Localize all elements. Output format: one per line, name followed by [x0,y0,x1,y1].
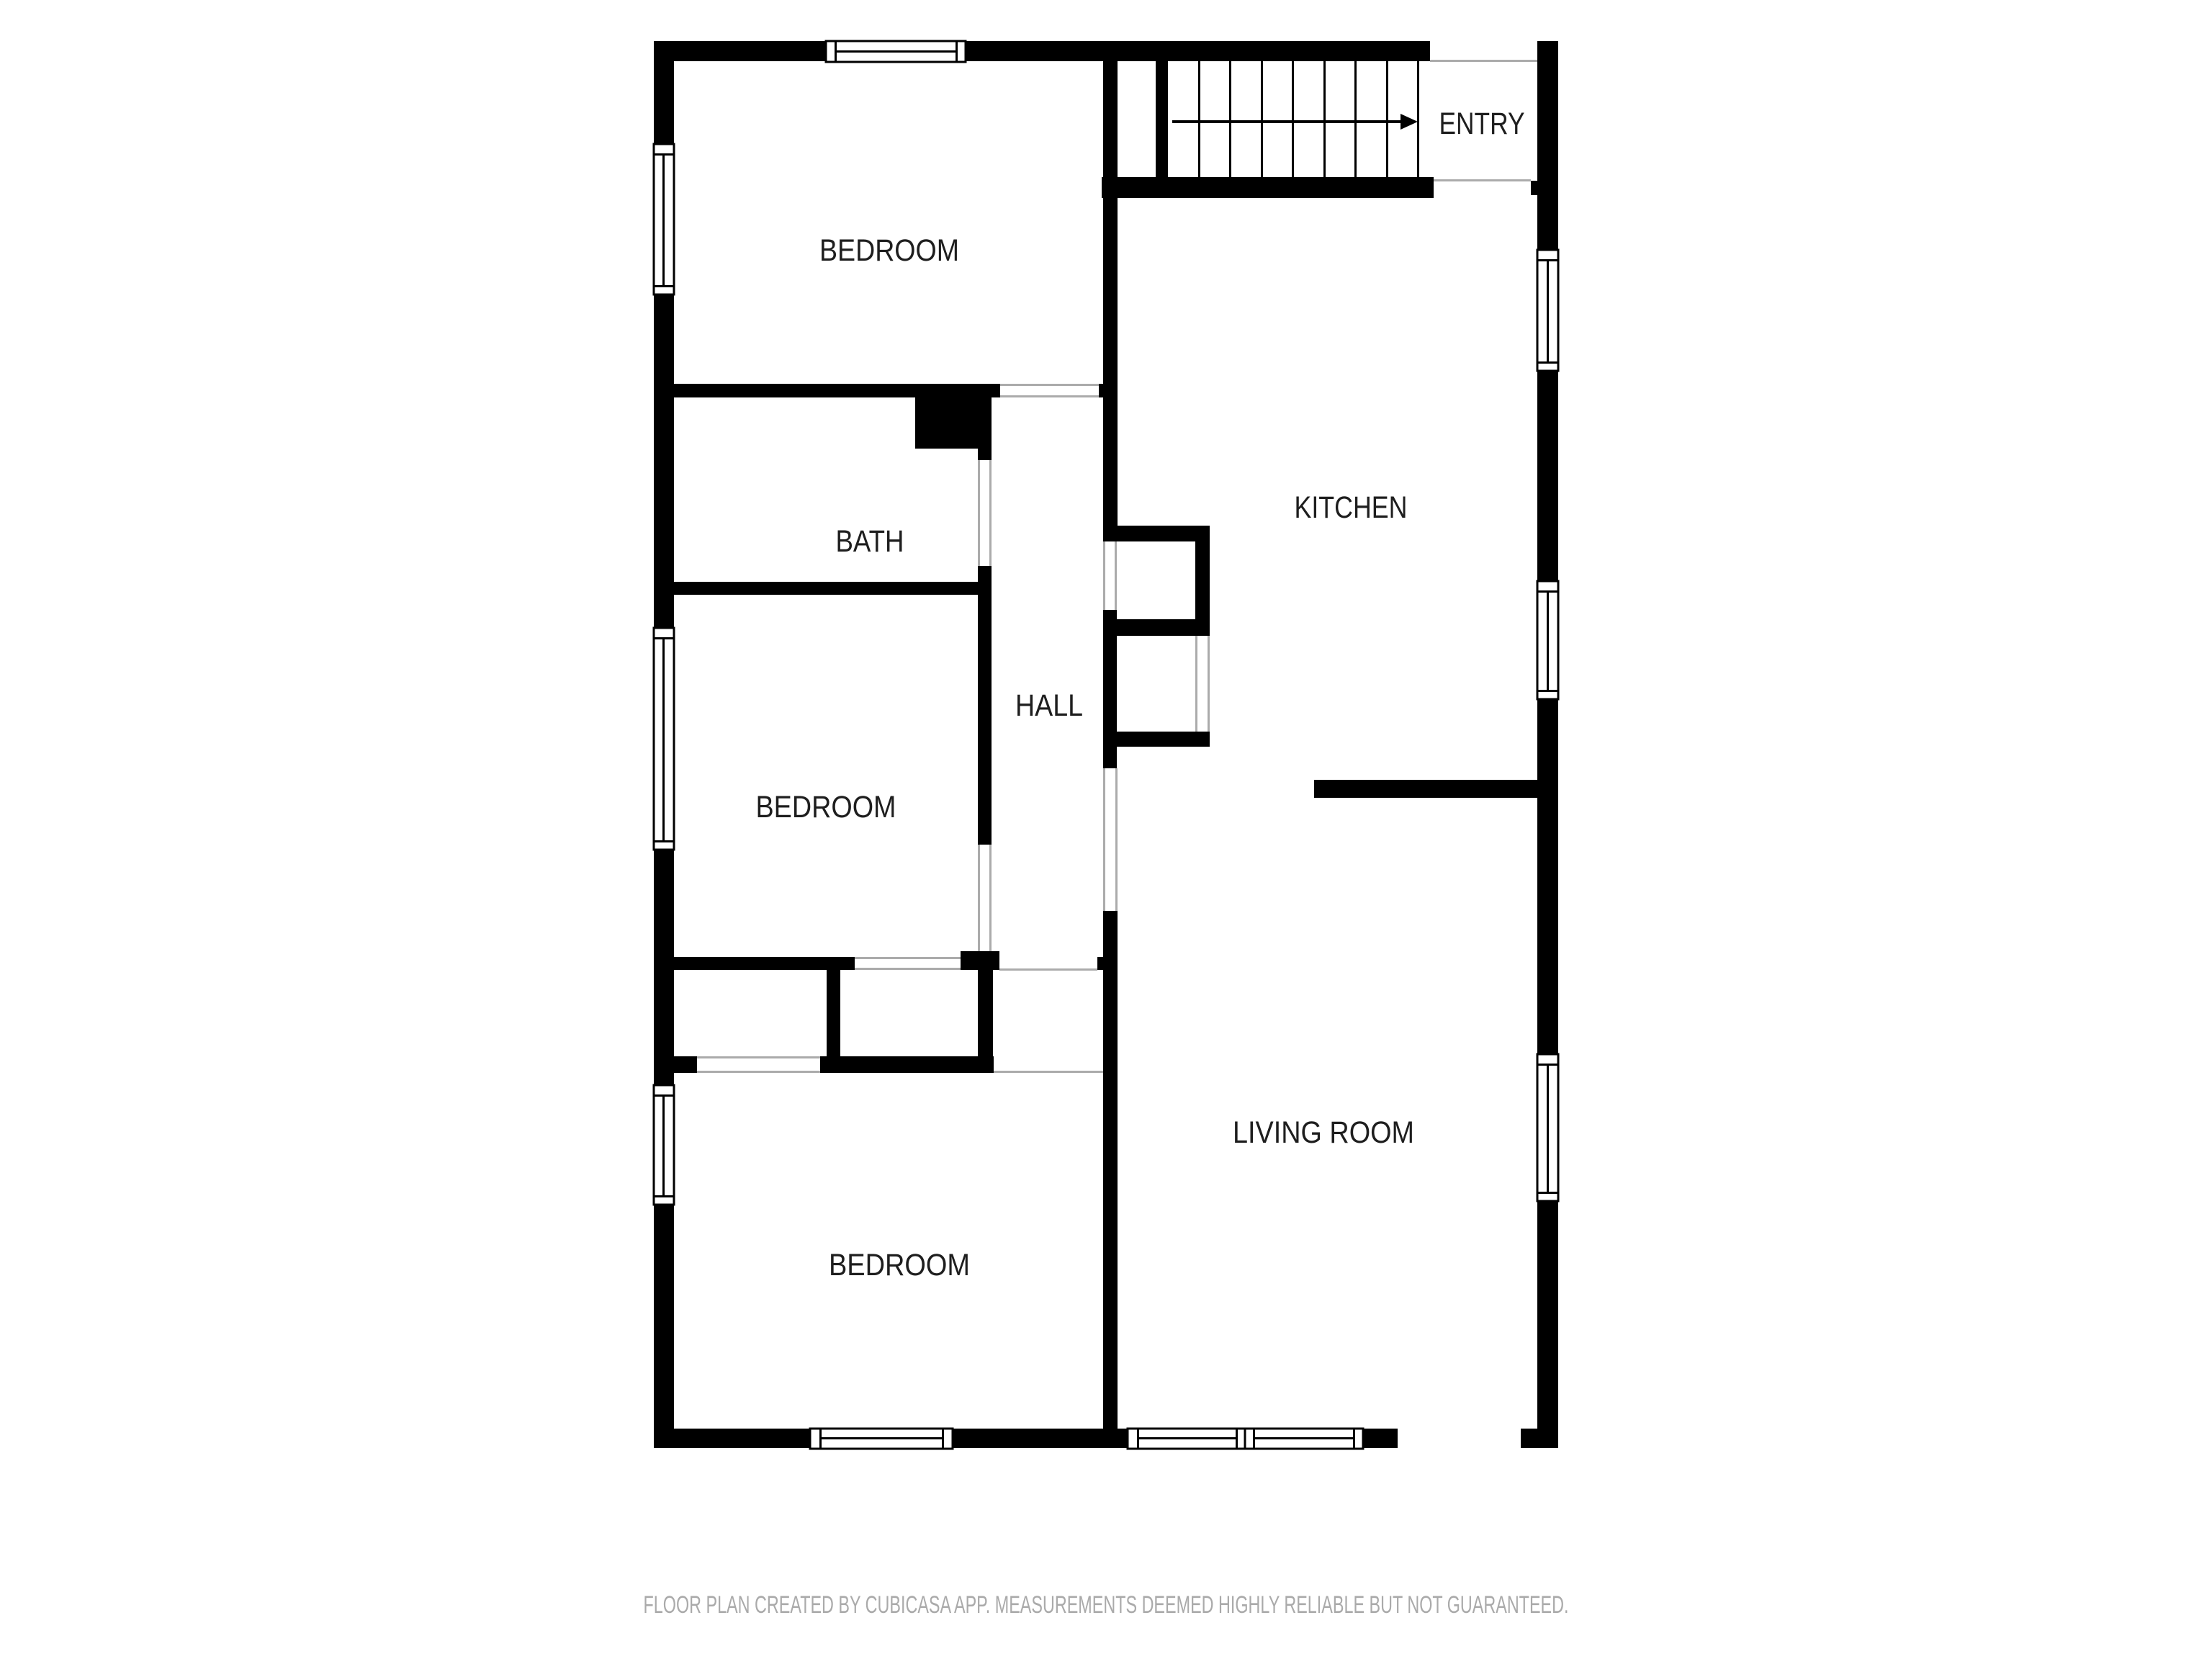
svg-text:ENTRY: ENTRY [1439,107,1525,141]
svg-text:BEDROOM: BEDROOM [829,1248,970,1282]
svg-text:BEDROOM: BEDROOM [756,790,896,824]
svg-text:FLOOR PLAN CREATED BY CUBICASA: FLOOR PLAN CREATED BY CUBICASA APP. MEAS… [644,1591,1569,1619]
svg-text:HALL: HALL [1015,688,1083,723]
svg-text:KITCHEN: KITCHEN [1295,490,1408,525]
svg-text:BATH: BATH [836,524,904,559]
svg-text:BEDROOM: BEDROOM [819,233,959,268]
svg-text:LIVING ROOM: LIVING ROOM [1233,1115,1414,1150]
